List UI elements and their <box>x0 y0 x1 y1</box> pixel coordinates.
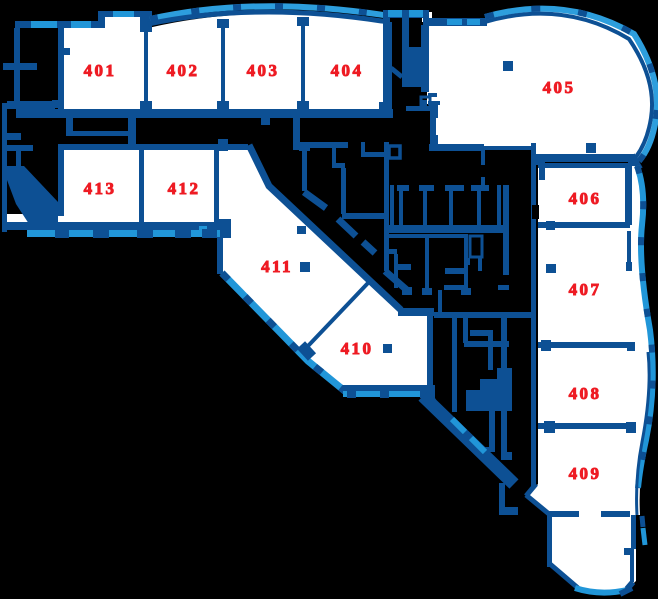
svg-text:407: 407 <box>569 280 602 299</box>
svg-text:409: 409 <box>569 464 602 483</box>
svg-text:406: 406 <box>569 189 602 208</box>
svg-text:413: 413 <box>84 179 117 198</box>
svg-text:408: 408 <box>569 384 602 403</box>
svg-text:411: 411 <box>261 257 293 276</box>
svg-text:401: 401 <box>84 61 117 80</box>
svg-text:404: 404 <box>331 61 364 80</box>
svg-text:403: 403 <box>247 61 280 80</box>
svg-text:410: 410 <box>341 339 374 358</box>
svg-text:412: 412 <box>168 179 201 198</box>
svg-text:405: 405 <box>543 78 576 97</box>
svg-text:402: 402 <box>167 61 200 80</box>
